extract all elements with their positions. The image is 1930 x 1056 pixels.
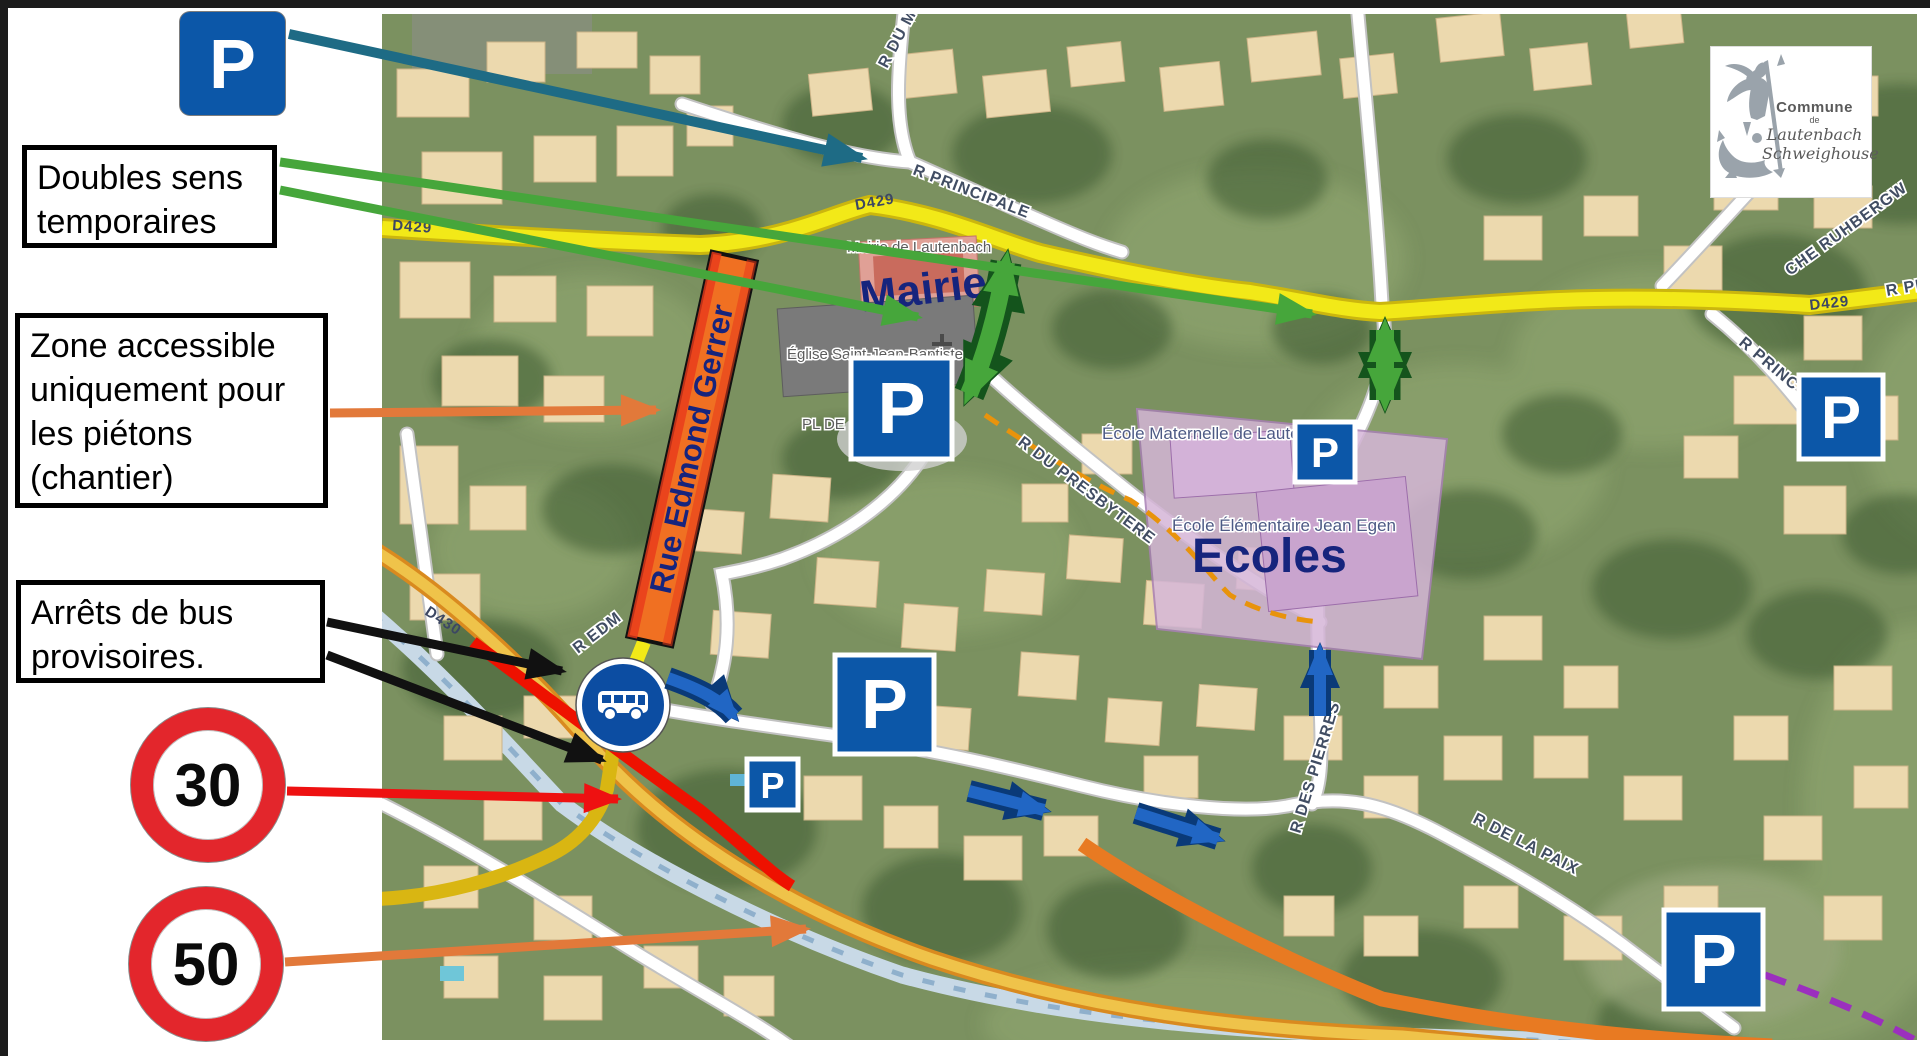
commune-logo: Commune de Lautenbach Schweighouse (1711, 47, 1871, 197)
speed-sign-30: 30 (131, 708, 285, 862)
speed-sign-50: 50 (129, 887, 283, 1041)
svg-text:P: P (760, 765, 784, 806)
svg-text:P: P (1311, 429, 1339, 476)
parking-sign-small: P (747, 759, 798, 810)
parking-sign-east: P (1799, 375, 1883, 459)
logo-line: Lautenbach (1762, 125, 1867, 144)
callout-doubles-sens: Doubles sens temporaires (22, 145, 277, 248)
aerial-map: Rue Edmond Gerrer R DU MOULIN R PRINCIPA… (372, 0, 1930, 1056)
callout-arrets-bus: Arrêts de bus provisoires. (16, 580, 325, 683)
speed-30-value: 30 (175, 751, 242, 820)
bus-sign (576, 658, 670, 752)
roadworks-map-slide: Rue Edmond Gerrer R DU MOULIN R PRINCIPA… (0, 0, 1930, 1056)
parking-sign-southeast: P (1664, 910, 1763, 1009)
callout-line: Zone accessible (30, 324, 313, 368)
logo-line: Commune (1762, 99, 1867, 116)
svg-text:P: P (1690, 920, 1737, 998)
parking-letter: P (209, 24, 256, 104)
callout-line: provisoires. (31, 635, 310, 679)
callout-zone-pietons: Zone accessible uniquement pour les piét… (15, 313, 328, 508)
slide-frame-left (0, 0, 8, 1056)
callout-line: uniquement pour (30, 368, 313, 412)
parking-sign-legend: P (180, 12, 285, 115)
callout-line: Arrêts de bus (31, 591, 310, 635)
parking-sign-center: P (835, 655, 934, 754)
callout-line: (chantier) (30, 456, 313, 500)
arrow-zone-pietons (330, 410, 656, 413)
logo-line: de (1762, 115, 1867, 125)
callout-line: Doubles sens (37, 156, 262, 200)
logo-line: Schweighouse (1762, 144, 1867, 163)
svg-text:P: P (861, 665, 908, 743)
parking-sign-mairie: P (851, 358, 952, 459)
callout-line: temporaires (37, 200, 262, 244)
ecoles-label: Ecoles (1192, 530, 1347, 583)
svg-text:P: P (877, 369, 925, 449)
slide-frame-top (0, 0, 1930, 8)
callout-line: les piétons (30, 412, 313, 456)
parking-sign-ecole: P (1295, 422, 1355, 482)
map-canvas: Rue Edmond Gerrer R DU MOULIN R PRINCIPA… (0, 0, 1930, 1056)
svg-text:P: P (1821, 384, 1861, 451)
speed-50-value: 50 (173, 930, 240, 999)
commune-logo-text: Commune de Lautenbach Schweighouse (1762, 99, 1867, 163)
